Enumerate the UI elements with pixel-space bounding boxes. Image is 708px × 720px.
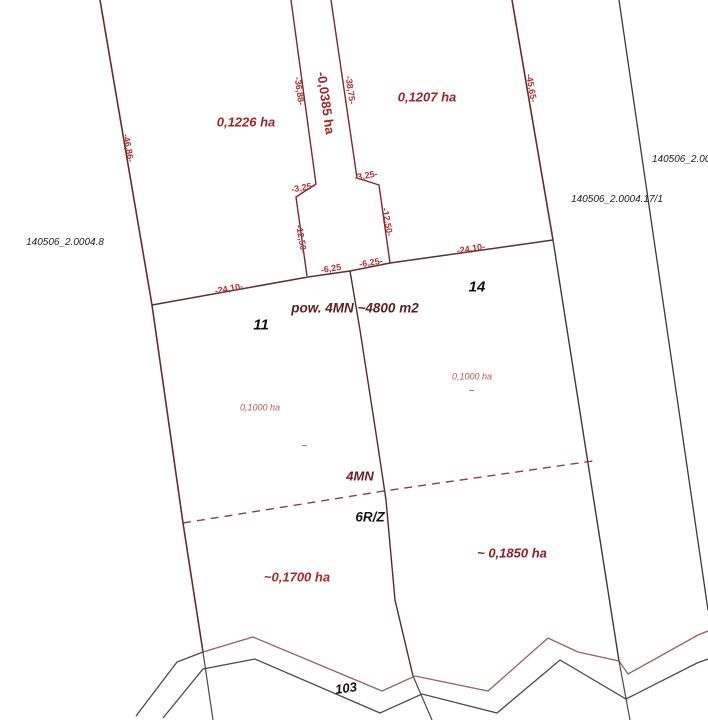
cadastral-id-right-top: 140506_2.0004.1	[652, 155, 708, 165]
parcel-number-11: 11	[253, 318, 269, 333]
main-division-boundary-line	[152, 240, 553, 305]
survey-tick-right	[469, 390, 474, 391]
survey-tick-left	[302, 445, 307, 446]
road-upper-edge-line	[203, 631, 708, 691]
left-boundary-line	[100, 0, 203, 652]
area-label-0-1000-right: 0,1000 ha	[452, 373, 492, 382]
cadastral-id-right-bottom: 140506_2.0004.17/1	[571, 195, 663, 205]
right-boundary-lower-line	[553, 240, 619, 661]
zone-dashed-line	[183, 461, 593, 523]
area-label-0-1207: 0,1207 ha	[398, 91, 457, 104]
strip-right-edge-line	[331, 0, 390, 263]
road-upper-edge-left-line	[136, 652, 203, 716]
middle-boundary-road-extension-line	[413, 676, 432, 720]
area-label-0-1000-left: 0,1000 ha	[240, 404, 280, 413]
area-note: pow. 4MN ~4800 m2	[291, 301, 418, 315]
area-label-0-1226: 0,1226 ha	[217, 116, 276, 129]
road-lower-edge-line	[163, 659, 708, 718]
cadastral-map: -46,86- -36,88- -38,75- -45,65- -3,25- -…	[0, 0, 708, 720]
area-label-0-1700: ~0,1700 ha	[264, 571, 330, 584]
zone-label-4mn: 4MN	[346, 470, 373, 483]
area-label-0-1850: ~ 0,1850 ha	[477, 547, 547, 560]
far-right-boundary-line	[619, 0, 708, 610]
parcel-number-14: 14	[469, 280, 486, 295]
parcel-number-103: 103	[334, 680, 357, 696]
zone-label-6rz: 6R/Z	[355, 510, 384, 524]
left-boundary-road-extension-line	[203, 652, 213, 720]
right-boundary-line	[512, 0, 553, 240]
map-geometry	[0, 0, 708, 720]
cadastral-id-left: 140506_2.0004.8	[26, 238, 104, 248]
